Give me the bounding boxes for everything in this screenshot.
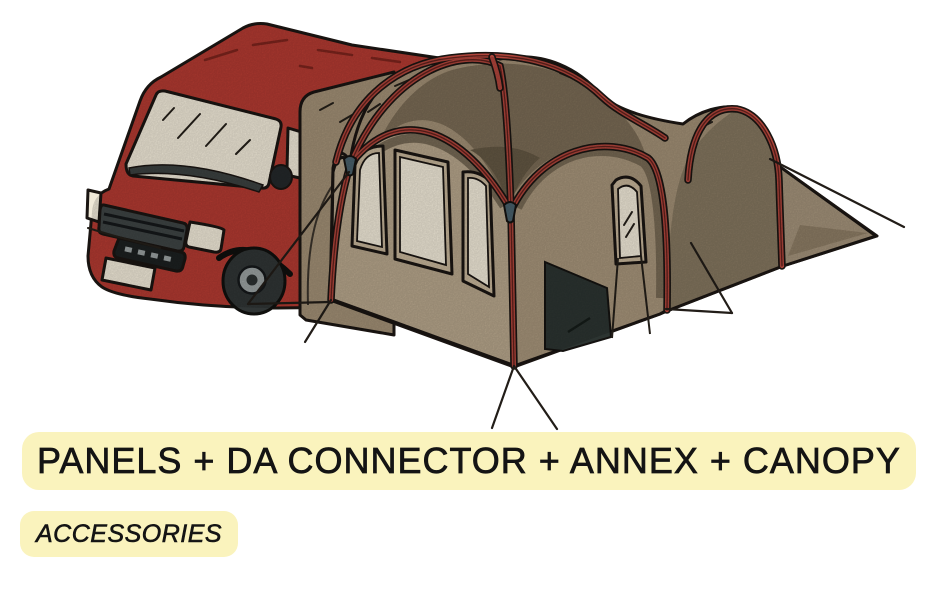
grain-texture xyxy=(60,15,940,445)
page: PANELS + DA CONNECTOR + ANNEX + CANOPY A… xyxy=(0,0,950,600)
campervan-awning-illustration xyxy=(0,0,950,600)
accessories-label: ACCESSORIES xyxy=(36,520,222,549)
accessories-banner: ACCESSORIES xyxy=(20,511,238,557)
product-title-banner: PANELS + DA CONNECTOR + ANNEX + CANOPY xyxy=(22,432,916,490)
product-title: PANELS + DA CONNECTOR + ANNEX + CANOPY xyxy=(37,440,901,482)
